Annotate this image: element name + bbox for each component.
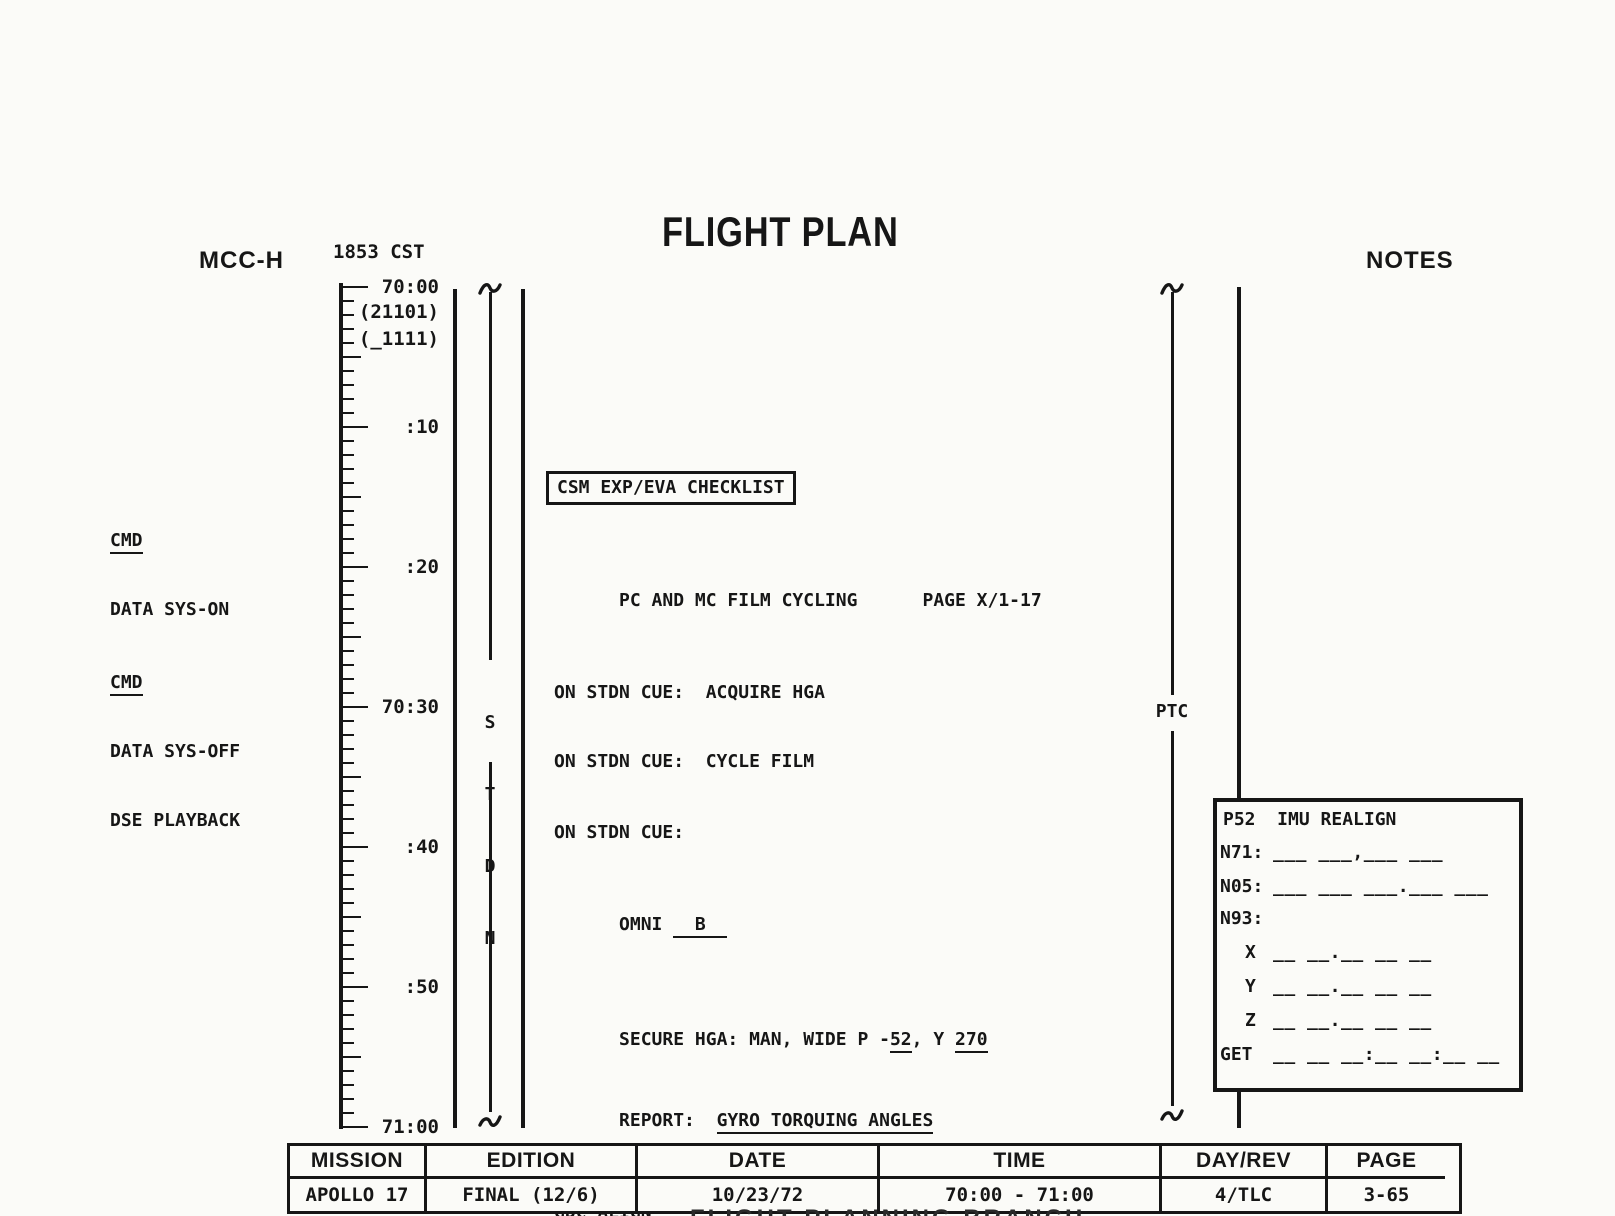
timeline-tick xyxy=(341,552,354,555)
timeline-tick xyxy=(341,944,354,947)
fill-in-blanks: ___ ___ ___.___ ___ xyxy=(1273,876,1488,897)
timeline-tick xyxy=(341,720,354,723)
stdn-cue-acquire-hga: ON STDN CUE: ACQUIRE HGA xyxy=(554,681,1042,704)
pad-row-get: GET __ __ __:__ __:__ __ xyxy=(1217,1044,1519,1078)
table-header-page: PAGE xyxy=(1328,1146,1445,1179)
pad-row-z: Z __ __.__ __ __ xyxy=(1217,1010,1519,1044)
timeline-tick xyxy=(341,1112,354,1115)
table-header-time: TIME xyxy=(880,1146,1162,1179)
timeline-tick xyxy=(341,1098,354,1101)
timeline-tick xyxy=(341,608,354,611)
p52-imu-realign-pad: P52 IMU REALIGN N71: ___ ___,___ ___ N05… xyxy=(1213,798,1523,1092)
timeline-tick xyxy=(341,510,354,513)
omni-label: OMNI xyxy=(619,914,673,935)
timeline-tick xyxy=(341,482,354,485)
timeline-tick xyxy=(341,888,354,891)
pad-row-n71: N71: ___ ___,___ ___ xyxy=(1217,842,1519,876)
timeline-tick xyxy=(341,384,354,387)
timeline-tick xyxy=(341,412,354,415)
timeline-tick xyxy=(341,496,361,499)
timeline-tick xyxy=(341,440,354,443)
cmd-label: CMD xyxy=(110,530,143,554)
timeline-tick xyxy=(341,664,354,667)
timeline-tick xyxy=(341,776,361,779)
report-label: REPORT: xyxy=(619,1110,717,1131)
pad-row-n93: N93: xyxy=(1217,908,1519,942)
timeline-tick xyxy=(341,790,354,793)
cmd-label: CMD xyxy=(110,672,143,696)
fill-in-blanks: __ __ __:__ __:__ __ xyxy=(1273,1044,1500,1065)
timeline-tick xyxy=(341,748,354,751)
timeline-label: 70:00 xyxy=(349,276,439,298)
ptc-bracket-bottom-hook xyxy=(1159,1106,1185,1124)
timeline-tick xyxy=(341,1042,354,1045)
timeline-tick xyxy=(341,370,354,373)
pad-row-n05: N05: ___ ___ ___.___ ___ xyxy=(1217,876,1519,910)
column-line-right xyxy=(521,289,525,1128)
timeline-tick xyxy=(341,678,354,681)
timeline-tick xyxy=(341,454,354,457)
data-sys-on-label: DATA SYS-ON xyxy=(110,598,229,621)
cst-time-label: 1853 CST xyxy=(333,241,425,263)
timeline-tick xyxy=(341,538,354,541)
timeline-tick xyxy=(341,902,354,905)
page-reference: PAGE X/1-17 xyxy=(922,590,1041,611)
timeline-label: 70:30 xyxy=(349,696,439,718)
timeline-tick xyxy=(341,1070,354,1073)
fill-in-blanks: __ __.__ __ __ xyxy=(1273,976,1432,997)
yaw-value: 270 xyxy=(955,1029,988,1053)
table-header-edition: EDITION xyxy=(427,1146,638,1179)
timeline-tick xyxy=(341,1000,354,1003)
column-line-left xyxy=(453,289,457,1128)
page-title: FLIGHT PLAN xyxy=(662,208,899,256)
stdn-bracket-upper xyxy=(489,292,492,660)
timeline-label: (_1111) xyxy=(349,328,439,350)
timeline-tick xyxy=(341,398,354,401)
timeline-tick xyxy=(341,832,354,835)
timeline-tick xyxy=(341,622,354,625)
timeline-tick xyxy=(341,930,354,933)
timeline-tick xyxy=(341,762,354,765)
timeline-tick xyxy=(341,818,354,821)
film-cycling-label: PC AND MC FILM CYCLING xyxy=(619,590,857,611)
ptc-bracket-lower xyxy=(1171,731,1174,1106)
timeline-label: :40 xyxy=(349,836,439,858)
timeline-label: (21101) xyxy=(349,301,439,323)
timeline-tick xyxy=(341,594,354,597)
timeline-tick xyxy=(341,580,354,583)
stdn-bracket-lower xyxy=(489,762,492,1112)
fill-in-blanks: __ __.__ __ __ xyxy=(1273,1010,1432,1031)
pad-row-x: X __ __.__ __ __ xyxy=(1217,942,1519,976)
stdn-cue-cycle-film: ON STDN CUE: CYCLE FILM xyxy=(554,750,1042,773)
fill-in-blanks: __ __.__ __ __ xyxy=(1273,942,1432,963)
table-value-page: 3-65 xyxy=(1328,1179,1445,1211)
timeline-tick xyxy=(341,860,354,863)
timeline-tick xyxy=(341,1084,354,1087)
timeline-tick xyxy=(341,972,354,975)
stdn-bracket-bottom-hook xyxy=(477,1112,503,1130)
timeline-label: :10 xyxy=(349,416,439,438)
table-value-dayrev: 4/TLC xyxy=(1162,1179,1328,1211)
stdn-cue-label: ON STDN CUE: xyxy=(554,821,988,844)
mcch-block-cmd-off: CMD DATA SYS-OFF DSE PLAYBACK xyxy=(110,625,240,878)
pad-row-y: Y __ __.__ __ __ xyxy=(1217,976,1519,1010)
pad-title: P52 IMU REALIGN xyxy=(1223,809,1396,830)
csm-checklist-box: CSM EXP/EVA CHECKLIST xyxy=(546,471,796,505)
mission-data-table: MISSION EDITION DATE TIME DAY/REV PAGE A… xyxy=(287,1143,1462,1214)
timeline-tick xyxy=(341,958,354,961)
table-value-edition: FINAL (12/6) xyxy=(427,1179,638,1211)
timeline-tick xyxy=(341,636,361,639)
timeline-tick xyxy=(341,356,361,359)
timeline-tick xyxy=(341,1028,354,1031)
flight-plan-page: FLIGHT PLAN MCC-H 1853 CST NOTES 70:00(2… xyxy=(0,0,1615,1216)
timeline-label: :50 xyxy=(349,976,439,998)
footer-cutoff-text: FLIGHT PLANNING BRANCH xyxy=(690,1205,1085,1216)
timeline-tick xyxy=(341,692,354,695)
fill-in-blanks: ___ ___,___ ___ xyxy=(1273,842,1443,863)
timeline-tick xyxy=(341,524,354,527)
table-header-dayrev: DAY/REV xyxy=(1162,1146,1328,1179)
timeline-label: 71:00 xyxy=(349,1116,439,1138)
gyro-torquing-angles-label: GYRO TORQUING ANGLES xyxy=(717,1110,934,1134)
dse-playback-label: DSE PLAYBACK xyxy=(110,809,240,832)
timeline-label: :20 xyxy=(349,556,439,578)
timeline-tick xyxy=(341,874,354,877)
timeline-tick xyxy=(341,468,354,471)
table-value-mission: APOLLO 17 xyxy=(290,1179,427,1211)
timeline-tick xyxy=(341,650,354,653)
notes-column-label: NOTES xyxy=(1366,247,1454,275)
table-header-mission: MISSION xyxy=(290,1146,427,1179)
timeline-tick xyxy=(341,804,354,807)
mcch-column-label: MCC-H xyxy=(199,247,284,275)
ptc-bracket-upper xyxy=(1171,292,1174,695)
timeline-tick xyxy=(341,1014,354,1017)
timeline-tick xyxy=(341,916,361,919)
table-header-date: DATE xyxy=(638,1146,880,1179)
data-sys-off-label: DATA SYS-OFF xyxy=(110,740,240,763)
omni-antenna-blank: B xyxy=(673,914,727,938)
timeline-tick xyxy=(341,1056,361,1059)
ptc-bracket-label: PTC xyxy=(1146,701,1198,722)
timeline-tick xyxy=(341,734,354,737)
